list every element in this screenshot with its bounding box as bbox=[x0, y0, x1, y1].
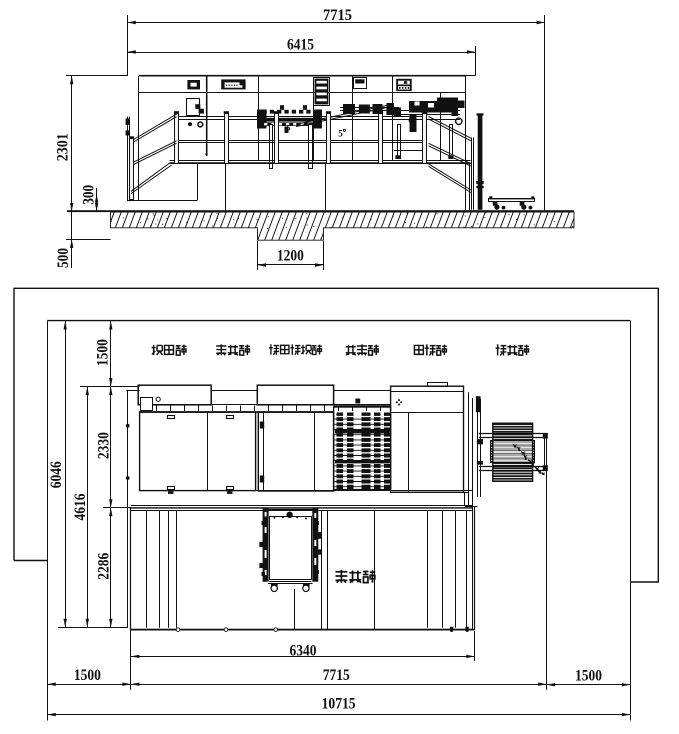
svg-text:7715: 7715 bbox=[323, 667, 350, 684]
svg-text:500: 500 bbox=[55, 248, 72, 268]
svg-text:2330: 2330 bbox=[96, 432, 113, 459]
svg-text:7715: 7715 bbox=[323, 7, 352, 24]
svg-text:5: 5 bbox=[287, 124, 291, 133]
svg-text:2286: 2286 bbox=[96, 553, 113, 580]
svg-text:10715: 10715 bbox=[322, 695, 356, 712]
svg-text:1500: 1500 bbox=[575, 668, 602, 685]
svg-text:6046: 6046 bbox=[48, 461, 65, 488]
svg-text:6415: 6415 bbox=[287, 37, 314, 54]
svg-text:6340: 6340 bbox=[290, 642, 317, 659]
svg-text:1200: 1200 bbox=[277, 248, 304, 265]
svg-text:4616: 4616 bbox=[72, 494, 89, 521]
svg-text:1500: 1500 bbox=[95, 339, 112, 366]
svg-text:1500: 1500 bbox=[74, 667, 101, 684]
svg-text:300: 300 bbox=[81, 185, 98, 205]
svg-text:5: 5 bbox=[338, 129, 343, 139]
svg-text:2301: 2301 bbox=[55, 133, 72, 161]
